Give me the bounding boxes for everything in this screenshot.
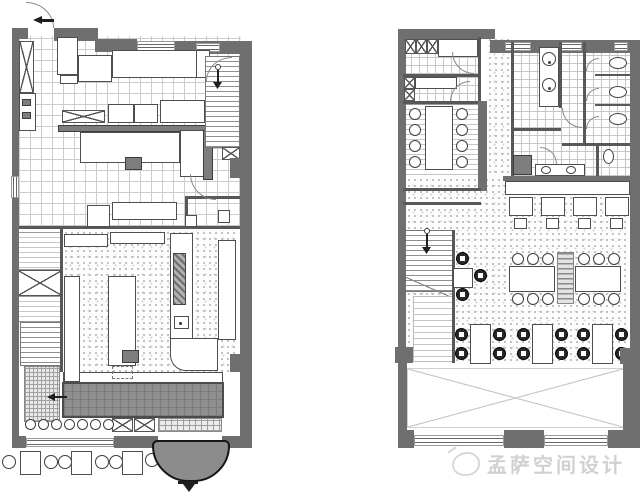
toilet <box>609 113 627 125</box>
second-floor-plan <box>0 0 640 495</box>
chair <box>493 347 506 360</box>
wash-basin <box>542 52 556 66</box>
chair <box>512 253 524 265</box>
chair <box>577 328 590 341</box>
chair <box>456 288 469 301</box>
wall-partition <box>478 37 481 104</box>
table-runner <box>557 252 574 304</box>
wash-basin <box>542 78 556 92</box>
bench-seat <box>505 181 630 195</box>
chair <box>456 140 468 152</box>
wall-partition <box>403 188 481 191</box>
wall-pier <box>504 430 544 448</box>
chair <box>409 124 421 136</box>
chair <box>593 253 605 265</box>
private-dining-table <box>425 106 453 170</box>
booth-table <box>541 197 565 216</box>
dining-table <box>470 324 491 364</box>
chair <box>409 108 421 120</box>
chair <box>527 293 539 305</box>
booth-table <box>605 197 629 216</box>
wall <box>398 363 407 430</box>
communal-table <box>509 266 555 292</box>
chair <box>555 328 568 341</box>
chair <box>578 253 590 265</box>
chair <box>517 347 530 360</box>
dining-table <box>532 324 553 364</box>
chair <box>542 253 554 265</box>
corridor-floor <box>487 37 511 177</box>
window <box>614 42 628 51</box>
void-opening <box>407 368 624 428</box>
restroom-wall <box>511 128 561 131</box>
restroom-wall <box>596 146 599 176</box>
chair <box>456 156 468 168</box>
urinal <box>541 166 551 174</box>
cafe-table <box>453 268 473 288</box>
window <box>560 42 582 51</box>
floor-plan-drawing: 孟萨空间设计 <box>0 0 640 495</box>
chair <box>577 347 590 360</box>
wall-partition <box>478 101 487 191</box>
wall-partition <box>403 101 481 104</box>
chair <box>615 328 628 341</box>
watermark-logo-icon <box>452 452 480 476</box>
wall-pier <box>395 347 413 363</box>
chair <box>456 124 468 136</box>
restroom-wall <box>583 42 586 146</box>
counter <box>415 77 457 89</box>
cabinet-x <box>416 39 427 54</box>
plans-layer <box>0 0 640 495</box>
toilet <box>603 149 614 164</box>
chair <box>542 293 554 305</box>
dining-table <box>592 324 613 364</box>
stall-divider <box>595 74 630 76</box>
wall-right <box>630 40 640 432</box>
window <box>505 42 531 51</box>
chair <box>593 293 605 305</box>
booth-chair <box>578 218 591 229</box>
chair <box>493 328 506 341</box>
cabinet-x <box>404 77 415 89</box>
stair-wall <box>452 230 455 363</box>
staircase-lower <box>413 296 453 362</box>
window <box>414 435 504 446</box>
wall-partition <box>403 202 481 205</box>
chair <box>455 328 468 341</box>
chair <box>455 347 468 360</box>
chair <box>512 293 524 305</box>
wall-pier <box>620 348 636 364</box>
communal-table <box>575 266 621 292</box>
wall-pier <box>398 430 414 448</box>
chair <box>578 293 590 305</box>
cabinet-x <box>404 89 415 101</box>
chair <box>474 269 487 282</box>
chair <box>456 252 469 265</box>
stair-break-line <box>403 276 453 298</box>
booth-chair <box>610 218 623 229</box>
stair-arrow <box>426 234 428 247</box>
chair <box>456 108 468 120</box>
toilet <box>609 57 627 69</box>
cabinet-x <box>405 39 416 54</box>
urinal <box>566 166 576 174</box>
booth-chair <box>514 218 527 229</box>
booth-table <box>573 197 597 216</box>
wall-pier <box>608 430 640 448</box>
chair <box>409 140 421 152</box>
stall-divider <box>595 104 630 106</box>
chair <box>409 156 421 168</box>
chair <box>517 328 530 341</box>
utility-block <box>513 155 532 175</box>
restroom-wall <box>559 42 562 108</box>
chair <box>527 253 539 265</box>
chair <box>555 347 568 360</box>
booth-table <box>509 197 533 216</box>
watermark: 孟萨空间设计 <box>452 449 625 478</box>
watermark-text: 孟萨空间设计 <box>487 449 625 478</box>
chair <box>608 293 620 305</box>
toilet <box>609 86 627 98</box>
window <box>544 435 608 446</box>
booth-chair <box>546 218 559 229</box>
chair <box>608 253 620 265</box>
cabinet-x <box>427 39 438 54</box>
